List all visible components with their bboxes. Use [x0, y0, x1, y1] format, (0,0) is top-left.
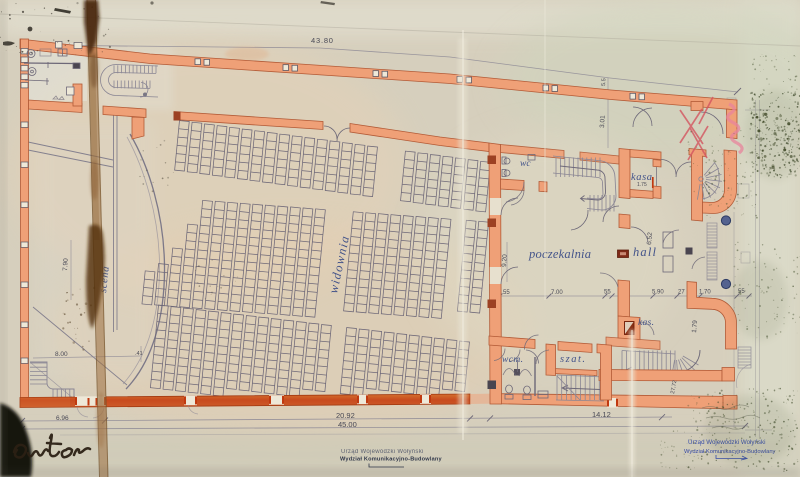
- svg-text:5.90: 5.90: [652, 290, 664, 296]
- svg-text:hall: hall: [633, 245, 657, 259]
- svg-text:43.80: 43.80: [311, 36, 334, 45]
- svg-text:1.70: 1.70: [699, 290, 711, 296]
- svg-text:14.12: 14.12: [592, 410, 611, 419]
- svg-text:Urząd Wojewódzki Wołyński: Urząd Wojewódzki Wołyński: [341, 449, 424, 455]
- svg-text:45.00: 45.00: [338, 420, 357, 429]
- svg-text:3.01: 3.01: [599, 115, 607, 128]
- svg-text:wcm.: wcm.: [502, 355, 523, 365]
- svg-text:1.79: 1.79: [691, 320, 699, 334]
- svg-text:kas.: kas.: [638, 318, 654, 328]
- svg-text:9.20: 9.20: [501, 254, 509, 267]
- svg-text:8.00: 8.00: [55, 351, 68, 358]
- svg-text:7.90: 7.90: [62, 258, 70, 271]
- svg-text:7.00: 7.00: [551, 290, 563, 296]
- svg-text:.41: .41: [135, 351, 143, 357]
- svg-text:5.5: 5.5: [601, 78, 607, 86]
- svg-text:55: 55: [604, 290, 611, 296]
- svg-text:27: 27: [678, 290, 685, 296]
- svg-text:20.92: 20.92: [336, 411, 355, 420]
- svg-text:Wydział Komunikacyjno-Budowlan: Wydział Komunikacyjno-Budowlany: [340, 457, 443, 463]
- svg-text:55: 55: [503, 290, 510, 296]
- svg-text:wc: wc: [520, 159, 531, 169]
- svg-text:6.52: 6.52: [646, 232, 654, 246]
- svg-text:6.96: 6.96: [56, 415, 69, 422]
- svg-text:1.75: 1.75: [637, 182, 647, 188]
- svg-text:poczekalnia: poczekalnia: [528, 247, 591, 261]
